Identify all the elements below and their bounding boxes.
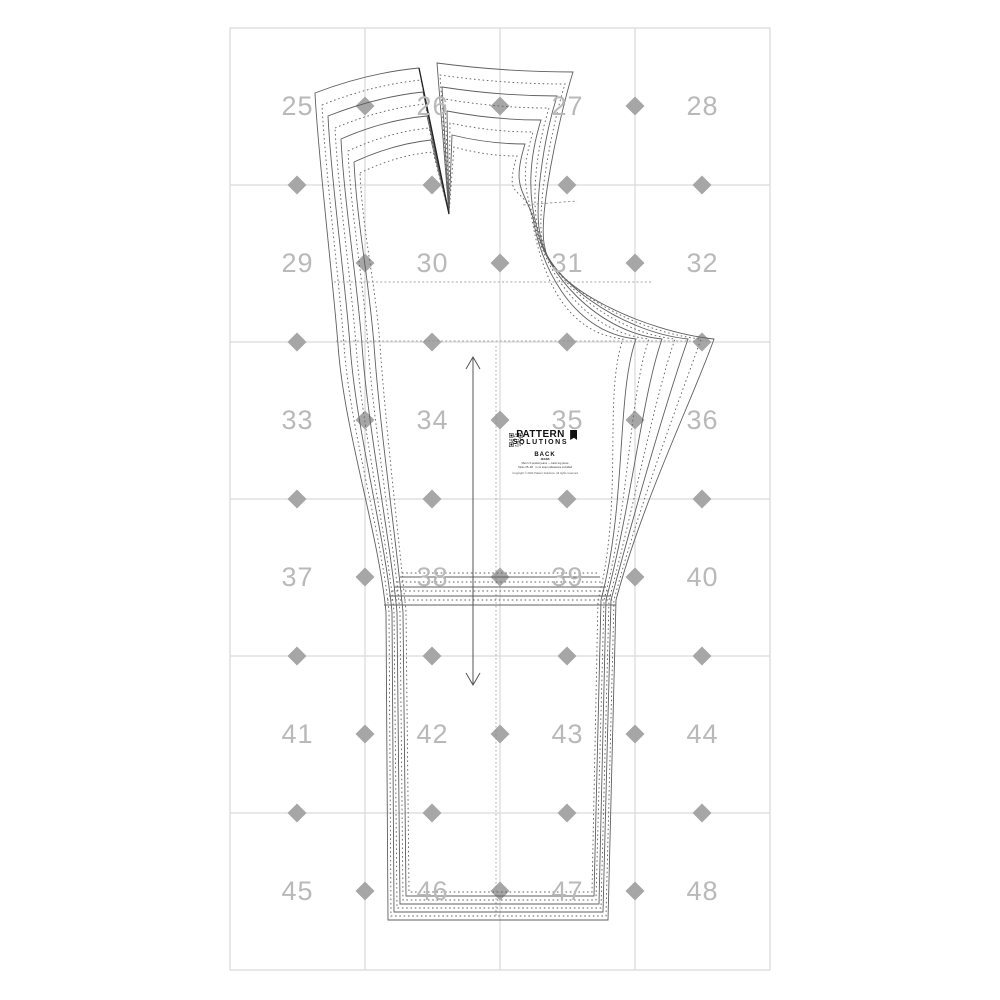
brand-mark-icon — [570, 430, 577, 440]
pocket-placement-line — [523, 201, 577, 205]
piece-label-block: PATTERN SOLUTIONS BACK JEANS Men's 5-poc… — [509, 430, 581, 476]
pattern-page: 25 26 27 28 29 30 31 32 33 34 35 36 37 3… — [0, 0, 1000, 1000]
pattern-drawing — [0, 0, 1000, 1000]
pattern-size-outlines — [315, 63, 714, 920]
grainline-arrow-icon — [466, 357, 480, 685]
copyright-text: Copyright © 2024 Pattern Solutions. All … — [512, 472, 578, 475]
size-outline — [322, 75, 701, 916]
size-outline — [354, 135, 636, 896]
size-outline — [341, 111, 662, 904]
info-line-1: Men's 5-pocket jeans — back leg piece — [522, 462, 569, 465]
info-line-2: Sizes 25–48 · 1 cm seam allowance includ… — [518, 466, 572, 469]
size-outline — [335, 99, 675, 908]
size-outline — [360, 147, 623, 892]
style-name: JEANS — [540, 458, 549, 461]
qr-code-icon — [509, 433, 523, 447]
size-outline — [315, 63, 714, 920]
assembly-grid — [230, 28, 770, 970]
